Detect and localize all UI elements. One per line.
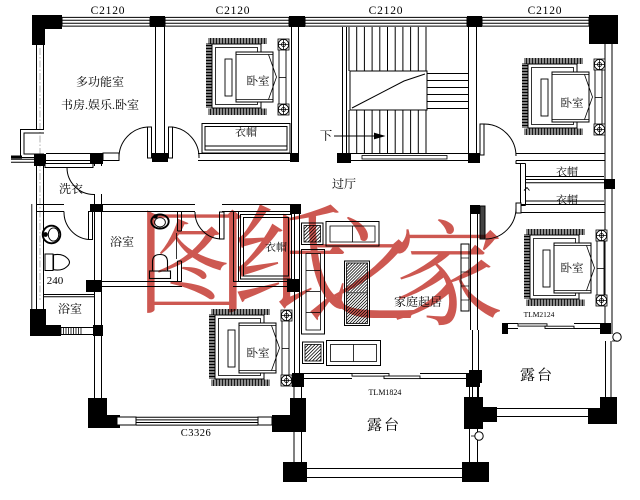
svg-text:多功能室: 多功能室 bbox=[76, 73, 124, 90]
svg-text:衣帽: 衣帽 bbox=[556, 164, 578, 180]
svg-text:卧室: 卧室 bbox=[247, 345, 270, 361]
svg-text:C2120: C2120 bbox=[369, 5, 404, 17]
svg-text:衣帽: 衣帽 bbox=[556, 192, 578, 208]
svg-text:书房.娱乐.卧室: 书房.娱乐.卧室 bbox=[61, 96, 139, 113]
svg-text:TLM2124: TLM2124 bbox=[524, 310, 555, 319]
svg-text:下: 下 bbox=[320, 126, 333, 144]
svg-text:C2120: C2120 bbox=[91, 5, 126, 17]
svg-text:TLM1824: TLM1824 bbox=[369, 388, 402, 397]
svg-text:卧室: 卧室 bbox=[247, 73, 270, 89]
svg-text:浴室: 浴室 bbox=[110, 233, 134, 250]
svg-text:露台: 露台 bbox=[367, 414, 401, 435]
svg-text:浴室: 浴室 bbox=[58, 300, 82, 317]
svg-text:C2120: C2120 bbox=[216, 5, 251, 17]
svg-text:露台: 露台 bbox=[520, 364, 554, 385]
svg-text:C3326: C3326 bbox=[181, 428, 212, 439]
svg-text:洗衣: 洗衣 bbox=[59, 180, 83, 197]
svg-text:衣帽: 衣帽 bbox=[235, 124, 257, 140]
svg-text:卧室: 卧室 bbox=[561, 95, 584, 111]
svg-text:家: 家 bbox=[389, 184, 504, 349]
svg-text:240: 240 bbox=[47, 275, 64, 287]
svg-text:C2120: C2120 bbox=[528, 5, 563, 17]
svg-text:卧室: 卧室 bbox=[561, 260, 584, 276]
